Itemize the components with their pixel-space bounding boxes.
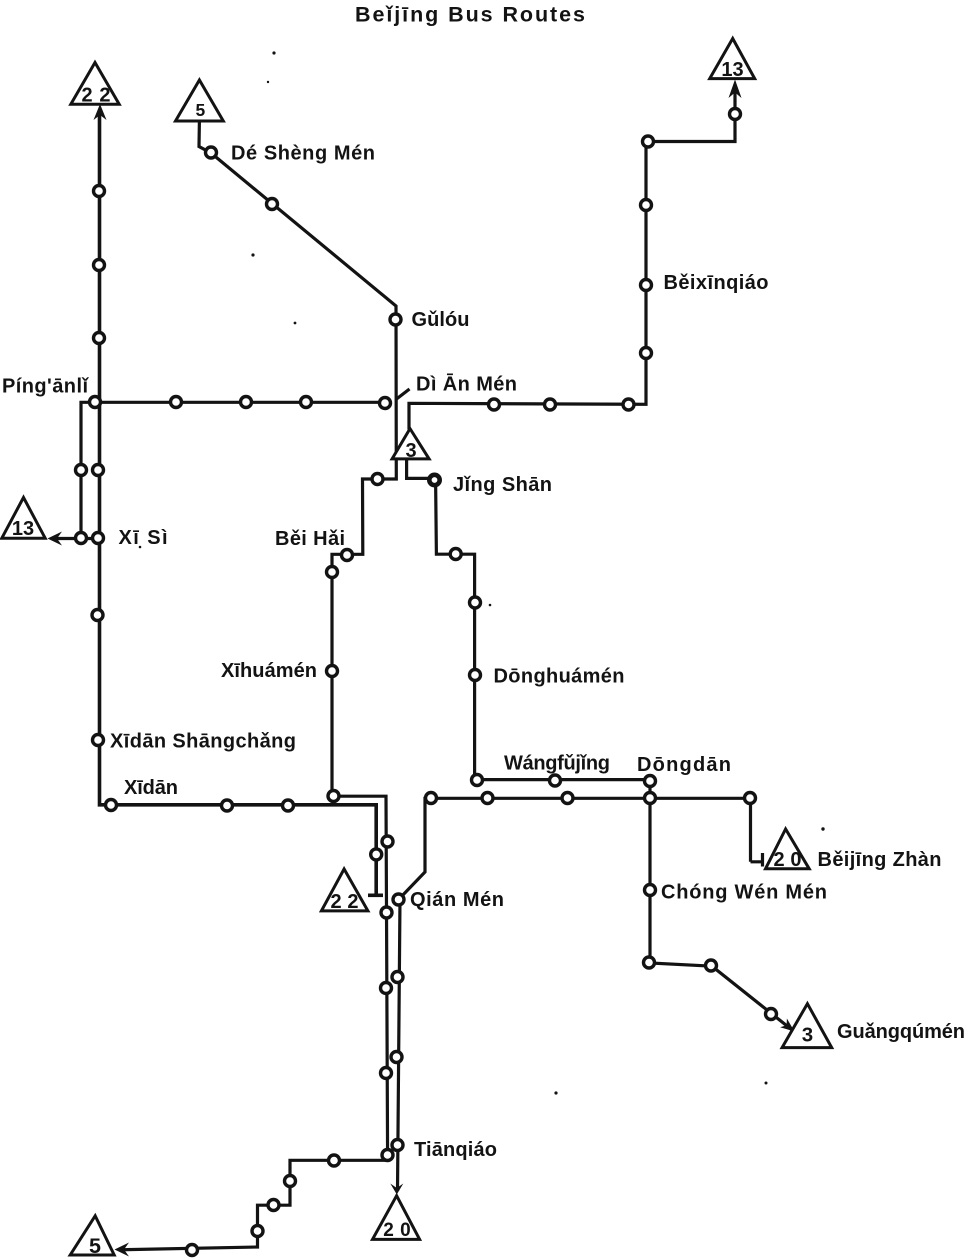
svg-text:Beǐjīng Bus Routes: Beǐjīng Bus Routes <box>355 3 585 27</box>
svg-text:Guǎngqúmén: Guǎngqúmén <box>837 1021 965 1043</box>
svg-text:Xīdān: Xīdān <box>124 777 178 799</box>
svg-text:5: 5 <box>196 100 206 120</box>
svg-text:Dōnghuámén: Dōnghuámén <box>494 666 625 688</box>
svg-text:Dì Ān Mén: Dì Ān Mén <box>416 374 517 396</box>
svg-text:Píng'ānlǐ: Píng'ānlǐ <box>2 376 89 398</box>
svg-text:Wángfǔjǐng: Wángfǔjǐng <box>504 753 610 775</box>
svg-text:Běijīng Zhàn: Běijīng Zhàn <box>818 849 942 871</box>
svg-text:Jǐng Shān: Jǐng Shān <box>453 474 552 496</box>
svg-text:2 2: 2 2 <box>82 85 111 107</box>
svg-text:5: 5 <box>89 1234 101 1258</box>
svg-text:Gǔlóu: Gǔlóu <box>412 309 470 331</box>
svg-text:Dé Shèng Mén: Dé Shèng Mén <box>231 143 375 165</box>
svg-text:2 2: 2 2 <box>331 891 359 913</box>
svg-text:Xīhuámén: Xīhuámén <box>221 660 317 682</box>
svg-text:Běi Hǎi: Běi Hǎi <box>275 528 345 550</box>
svg-text:3: 3 <box>405 440 416 462</box>
svg-text:Tiānqiáo: Tiānqiáo <box>414 1139 497 1161</box>
svg-text:Qián Mén: Qián Mén <box>410 889 504 911</box>
svg-text:Xī Sì: Xī Sì <box>119 527 168 549</box>
svg-text:13: 13 <box>12 518 34 540</box>
svg-text:Chóng Wén Mén: Chóng Wén Mén <box>661 882 827 904</box>
svg-text:Dōngdān: Dōngdān <box>637 754 731 776</box>
svg-text:13: 13 <box>721 59 743 81</box>
svg-text:3: 3 <box>802 1024 813 1047</box>
svg-text:Běixīnqiáo: Běixīnqiáo <box>664 272 769 294</box>
svg-text:Xīdān Shāngchǎng: Xīdān Shāngchǎng <box>110 731 296 753</box>
